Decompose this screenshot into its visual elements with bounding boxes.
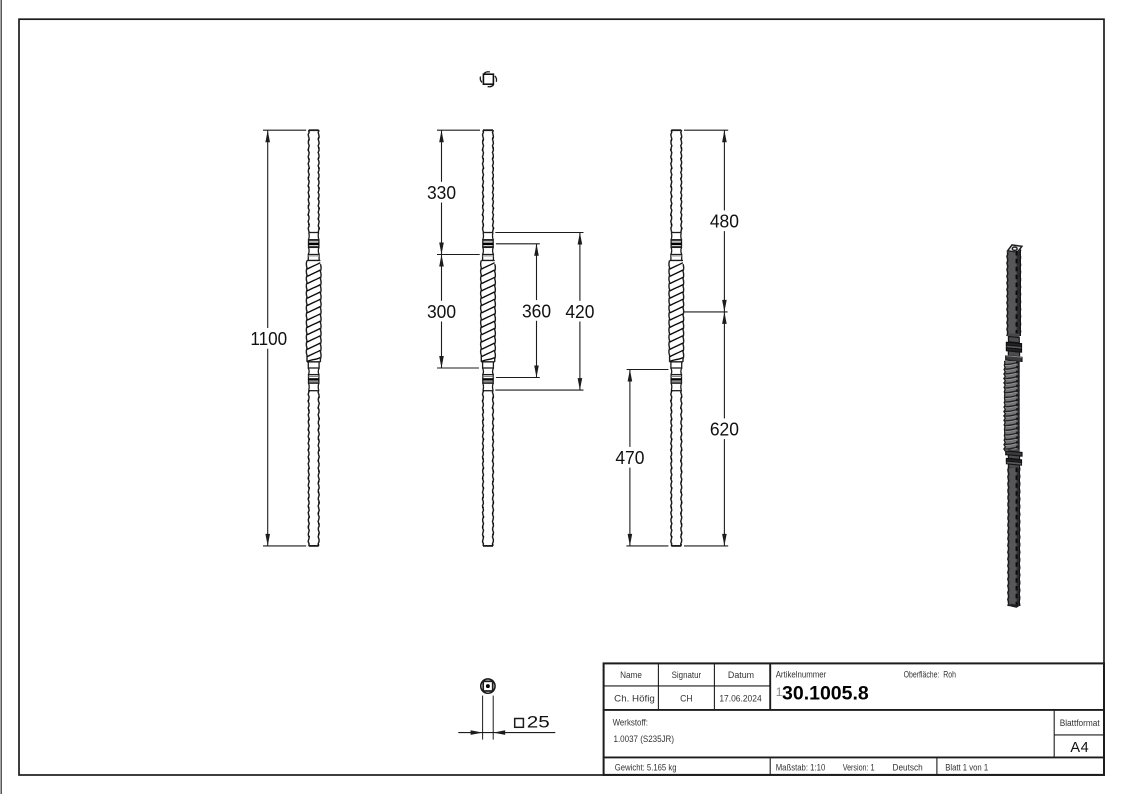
svg-text:480: 480 <box>710 211 739 232</box>
svg-text:Oberfläche: Roh: Oberfläche: Roh <box>904 669 956 679</box>
svg-text:620: 620 <box>710 419 739 440</box>
svg-text:Blatt 1 von 1: Blatt 1 von 1 <box>945 762 988 772</box>
svg-text:17.06.2024: 17.06.2024 <box>719 694 761 704</box>
svg-text:Name: Name <box>620 670 642 680</box>
svg-text:330: 330 <box>427 182 456 203</box>
svg-text:300: 300 <box>427 301 456 322</box>
svg-text:Version: 1: Version: 1 <box>843 762 875 772</box>
svg-text:30.1005.8: 30.1005.8 <box>782 682 869 704</box>
svg-text:420: 420 <box>565 301 594 322</box>
svg-text:1.0037 (S235JR): 1.0037 (S235JR) <box>614 734 675 744</box>
svg-text:360: 360 <box>522 300 551 321</box>
svg-text:Artikelnummer: Artikelnummer <box>776 669 827 679</box>
svg-text:470: 470 <box>615 447 644 468</box>
svg-text:Deutsch: Deutsch <box>893 762 923 772</box>
svg-text:1100: 1100 <box>250 328 287 349</box>
svg-text:25: 25 <box>527 714 550 732</box>
svg-text:Gewicht: 5.165 kg: Gewicht: 5.165 kg <box>615 762 677 772</box>
svg-text:Werkstoff:: Werkstoff: <box>613 717 648 727</box>
svg-text:Blattformat: Blattformat <box>1060 718 1100 728</box>
svg-text:Signatur: Signatur <box>672 670 702 680</box>
svg-text:CH: CH <box>680 694 693 704</box>
svg-text:Datum: Datum <box>728 670 754 680</box>
svg-text:Ch. Höfig: Ch. Höfig <box>614 694 655 704</box>
svg-text:Maßstab: 1:10: Maßstab: 1:10 <box>776 762 826 772</box>
svg-text:A4: A4 <box>1070 740 1089 756</box>
